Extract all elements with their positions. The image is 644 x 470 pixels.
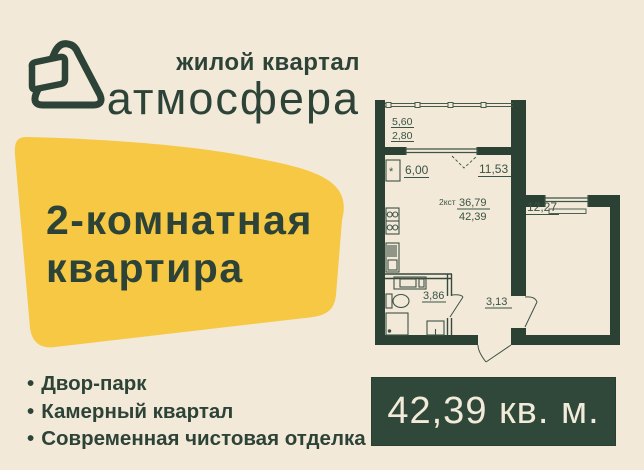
ad-poster: жилой квартал атмосфера 2-комнатная квар… bbox=[0, 0, 644, 470]
bathroom-door bbox=[450, 295, 463, 317]
label-balcony-dim1: 5,60 bbox=[392, 116, 413, 128]
bathroom-fixtures bbox=[386, 277, 444, 335]
banner-title: 2-комнатная квартира bbox=[46, 196, 313, 292]
floor-plan: 5,60 2,80 6,00 11,53 2кст 36,79 42,39 12… bbox=[370, 95, 625, 375]
washbasin-symbol bbox=[427, 321, 444, 335]
feature-text: Камерный квартал bbox=[41, 400, 233, 423]
label-balcony-dim2: 2,80 bbox=[392, 130, 413, 142]
features-list: •Двор-парк •Камерный квартал •Современна… bbox=[27, 370, 366, 453]
stove-symbol bbox=[386, 208, 399, 234]
label-bathroom-area: 3,86 bbox=[423, 290, 444, 302]
feature-item: •Современная чистовая отделка bbox=[27, 425, 366, 453]
label-area-living: 36,79 bbox=[459, 197, 487, 209]
fridge-asterisk: * bbox=[389, 166, 394, 178]
area-badge: 42,39 кв. м. bbox=[371, 377, 616, 446]
balcony-glazing bbox=[385, 103, 513, 108]
bedroom-door bbox=[525, 297, 537, 327]
toilet-symbol bbox=[386, 294, 409, 308]
feature-text: Современная чистовая отделка bbox=[41, 427, 365, 450]
feature-item: •Камерный квартал bbox=[27, 398, 366, 426]
feature-item: •Двор-парк bbox=[27, 370, 366, 398]
kitchen-sink-symbol bbox=[386, 243, 399, 272]
bullet-icon: • bbox=[27, 372, 34, 395]
label-kitchen-area: 6,00 bbox=[405, 163, 429, 177]
logo-text-block: жилой квартал атмосфера bbox=[80, 50, 360, 121]
label-living-area: 11,53 bbox=[479, 162, 508, 176]
shower-symbol bbox=[386, 313, 408, 335]
feature-text: Двор-парк bbox=[41, 372, 146, 395]
bullet-icon: • bbox=[27, 400, 34, 423]
logo-brand: атмосфера bbox=[80, 77, 360, 121]
label-bedroom-area: 12,27 bbox=[527, 200, 557, 214]
label-hallway-area: 3,13 bbox=[486, 296, 507, 308]
bullet-icon: • bbox=[27, 427, 34, 450]
entrance-door bbox=[478, 345, 511, 362]
banner-line1: 2-комнатная bbox=[46, 196, 313, 244]
area-badge-label: 42,39 кв. м. bbox=[387, 390, 599, 433]
label-unit-type: 2кст bbox=[439, 197, 456, 207]
label-area-total: 42,39 bbox=[459, 211, 487, 223]
banner-line2: квартира bbox=[46, 244, 313, 292]
